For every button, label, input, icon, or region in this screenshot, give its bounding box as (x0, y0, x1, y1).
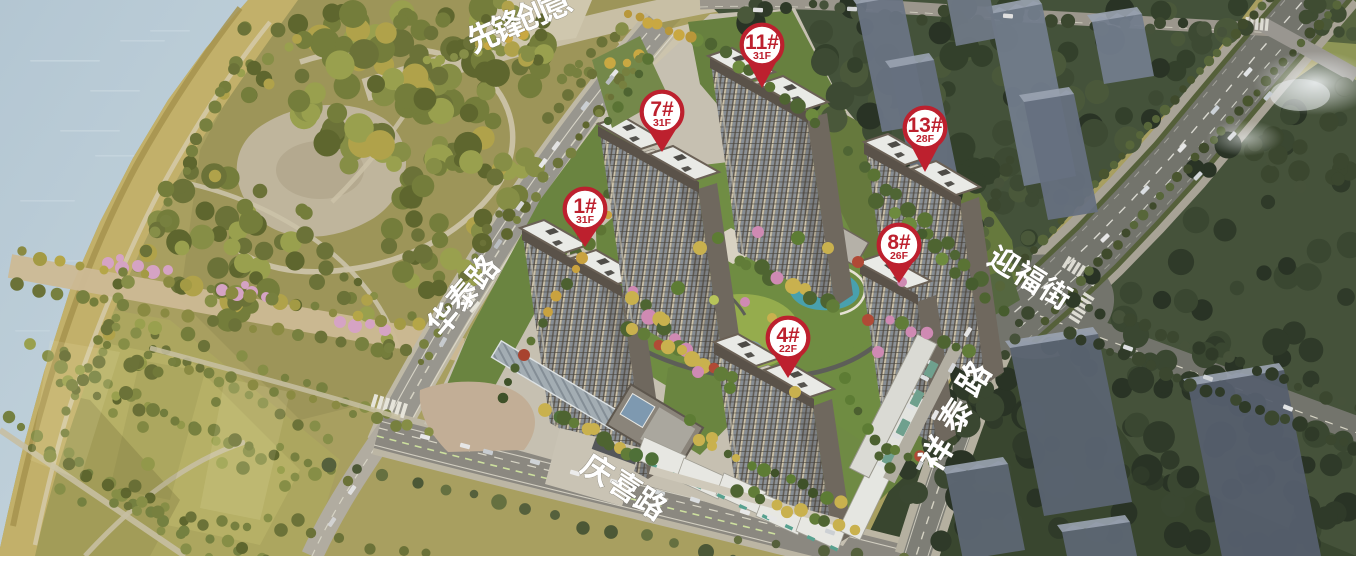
svg-text:28F: 28F (916, 133, 935, 145)
svg-text:26F: 26F (890, 250, 909, 262)
svg-text:31F: 31F (576, 214, 595, 226)
svg-text:22F: 22F (779, 343, 798, 355)
svg-text:31F: 31F (753, 50, 772, 62)
svg-text:31F: 31F (653, 117, 672, 129)
